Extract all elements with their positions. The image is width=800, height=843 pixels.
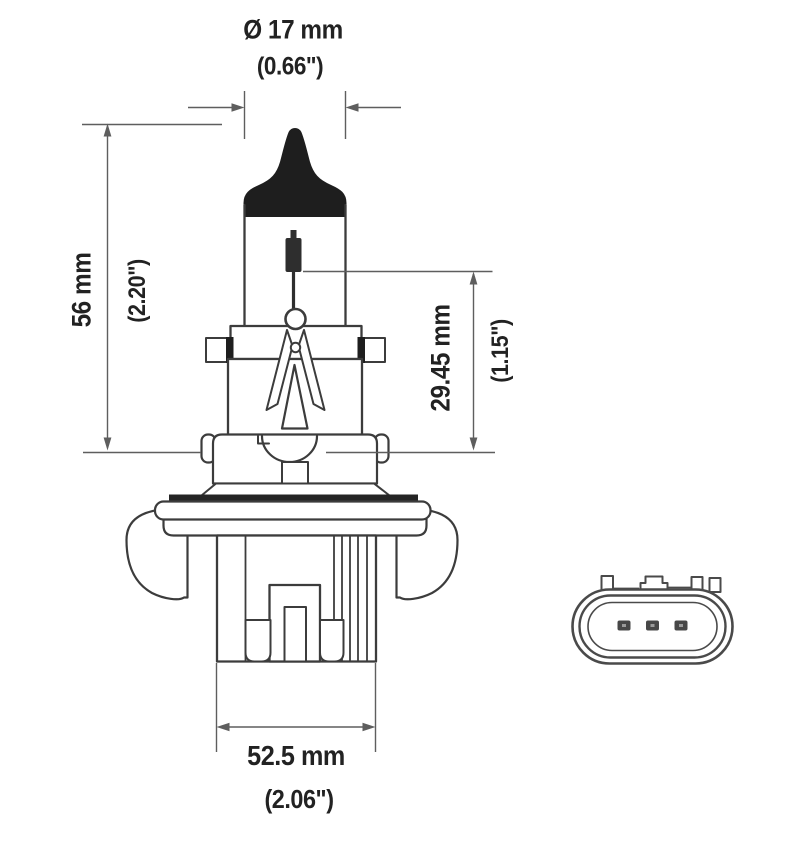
dimension-base-width [217, 663, 376, 752]
filament [286, 230, 302, 308]
filament-label-imperial: (1.15") [489, 319, 513, 383]
bulb-technical-diagram: Ø 17 mm (0.66") 56 mm (2.20") 29.45 mm (… [0, 0, 800, 843]
left-foot [246, 620, 271, 662]
diameter-label-imperial: (0.66") [257, 55, 323, 80]
diagram-canvas [0, 0, 800, 843]
connector-view [573, 576, 733, 664]
length-label-imperial: (2.20") [126, 259, 150, 323]
diameter-label-metric: Ø 17 mm [243, 17, 343, 44]
connector-pins [618, 621, 688, 631]
filament-label-metric: 29.45 mm [428, 304, 455, 411]
dimension-overall-length [82, 124, 222, 453]
bulb-drawing [127, 129, 458, 662]
base-housing [217, 536, 376, 662]
right-foot [320, 620, 344, 662]
center-terminal [285, 607, 307, 662]
bulb-tip [245, 129, 346, 216]
base-width-label-imperial: (2.06") [264, 786, 333, 812]
base-collar [202, 435, 390, 496]
mounting-flange [155, 502, 431, 536]
base-width-label-metric: 52.5 mm [247, 742, 345, 770]
length-label-metric: 56 mm [69, 253, 96, 328]
